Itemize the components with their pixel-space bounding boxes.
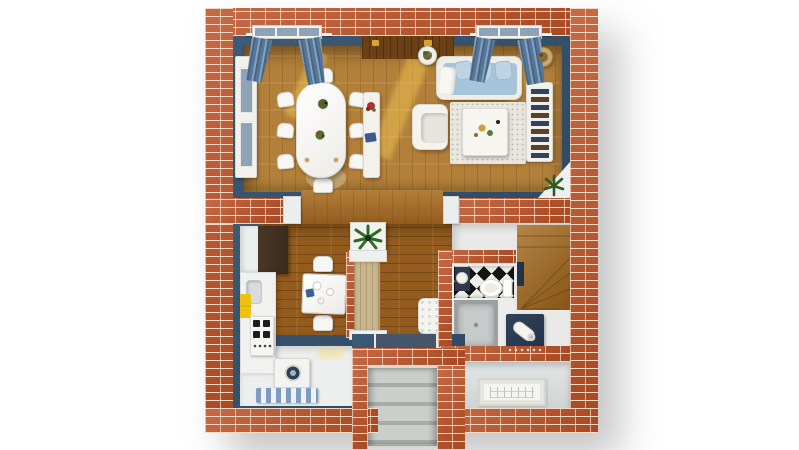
window-pane [277, 28, 297, 36]
bookshelf [526, 82, 553, 162]
entry-pier-right [437, 366, 465, 450]
entry-pier-left [352, 366, 368, 450]
window-pane [479, 28, 498, 36]
cabinet-glass-door [240, 121, 253, 167]
bathroom-wall-left [438, 250, 452, 356]
tall-dark-cabinet [258, 226, 288, 274]
divider-wall-left [205, 198, 283, 224]
divider-wall-right [459, 198, 570, 224]
dining-chair [313, 178, 333, 193]
yellow-towels [240, 294, 251, 318]
window-pane [299, 28, 319, 36]
exterior-wall-right [570, 8, 598, 433]
dining-table [296, 82, 346, 178]
armchair [412, 104, 448, 150]
bathroom-checker-floor [454, 266, 514, 298]
doormat-grid [490, 387, 534, 398]
window-dining [252, 25, 322, 39]
stair-newel [517, 262, 524, 286]
plant-stand [418, 46, 437, 65]
doormat [478, 378, 546, 406]
doorway-floor-transition [301, 190, 443, 224]
kitchen-chair [313, 256, 333, 272]
window-pane [255, 28, 275, 36]
divider-pillar-left [283, 196, 301, 224]
breakfast-table [301, 273, 346, 315]
coffee-table [462, 108, 508, 156]
wardrobe-top-cap [349, 250, 387, 262]
window-pane [500, 28, 519, 36]
window-pane [520, 28, 539, 36]
dining-chair [276, 91, 295, 108]
sofa-throw-blanket [439, 66, 457, 95]
plant-pedestal [350, 222, 386, 252]
sunlight-patch [318, 348, 344, 358]
dining-chair [276, 122, 294, 139]
entry-steps [368, 368, 437, 446]
winder-staircase [517, 225, 570, 310]
window-living [476, 25, 542, 39]
dining-chair [276, 153, 294, 169]
floor-plan-render [0, 0, 799, 450]
divider-pillar-right [443, 196, 459, 224]
entry-door-wall [352, 348, 465, 366]
wardrobe-brick-trim [346, 252, 354, 338]
armchair-seat [421, 113, 447, 143]
kitchen-chair [313, 315, 333, 331]
washing-machine [274, 358, 310, 388]
striped-runner-rug [256, 388, 318, 403]
stove [250, 316, 274, 356]
front-door [374, 334, 438, 348]
wardrobe-door [354, 262, 380, 332]
mantel-ornament [372, 40, 379, 46]
console-table [363, 92, 380, 178]
stair-treads [517, 225, 570, 310]
sofa-cushion [494, 60, 513, 80]
books [531, 87, 549, 158]
